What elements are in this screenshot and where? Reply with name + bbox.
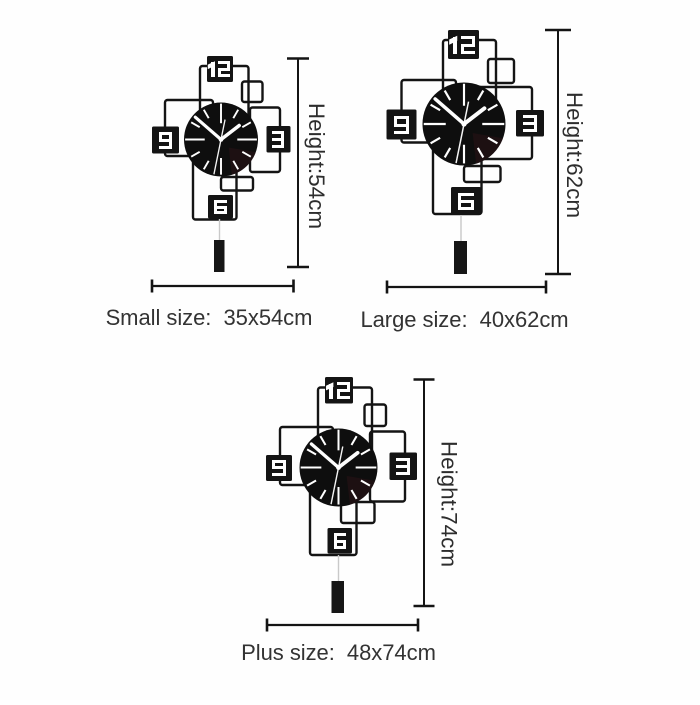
svg-text:Plus size: 48x74cm: Plus size: 48x74cm (241, 640, 436, 665)
svg-text:Height:54cm: Height:54cm (304, 103, 329, 229)
svg-text:Large size: 40x62cm: Large size: 40x62cm (360, 307, 568, 332)
svg-text:Height:62cm: Height:62cm (562, 92, 587, 218)
svg-text:Small size: 35x54cm: Small size: 35x54cm (106, 305, 313, 330)
svg-text:Height:74cm: Height:74cm (437, 441, 462, 567)
